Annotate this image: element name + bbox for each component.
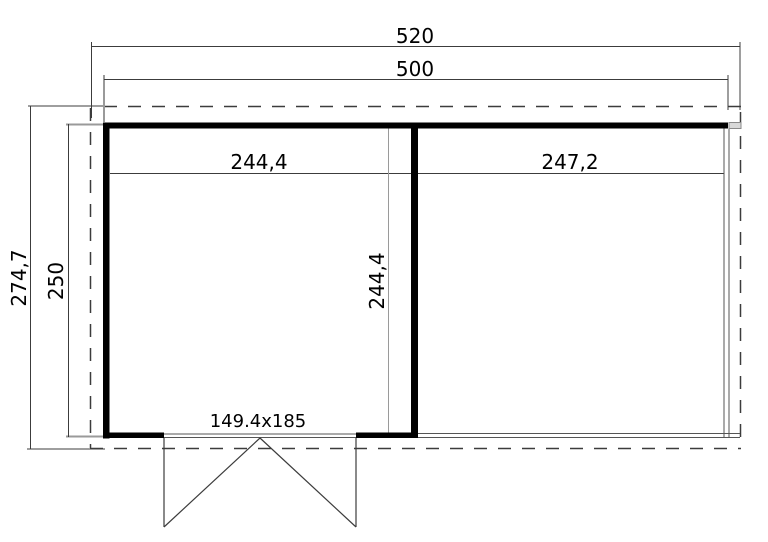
label-wall-width: 500	[396, 57, 434, 81]
thin-edges	[164, 129, 740, 438]
label-overall-width: 520	[396, 24, 434, 48]
label-left-room-depth: 244,4	[365, 252, 389, 309]
label-overall-depth: 274,7	[7, 249, 31, 306]
door-leaf-right	[260, 438, 356, 527]
extension-lines-gray	[66, 75, 104, 437]
label-left-room-width: 244,4	[230, 150, 287, 174]
label-door-size: 149.4x185	[210, 411, 307, 432]
wall-middle-partition	[411, 129, 418, 433]
label-wall-depth: 250	[44, 262, 68, 300]
wall-top	[103, 123, 728, 129]
door-leaf-left	[164, 438, 260, 527]
wall-left	[103, 123, 110, 439]
floor-plan-drawing: 520 500 244,4 247,2 274,7 250 244,4 149.…	[0, 0, 768, 542]
floor-plan-canvas: 520 500 244,4 247,2 274,7 250 244,4 149.…	[0, 0, 768, 542]
double-door-swing	[164, 438, 356, 527]
top-right-beam-cap	[729, 123, 741, 129]
wall-bottom-left-segment	[103, 433, 164, 439]
wall-bottom-right-segment	[356, 433, 418, 439]
walls	[103, 123, 728, 439]
dimension-lines	[27, 42, 740, 449]
label-right-room-width: 247,2	[541, 150, 598, 174]
